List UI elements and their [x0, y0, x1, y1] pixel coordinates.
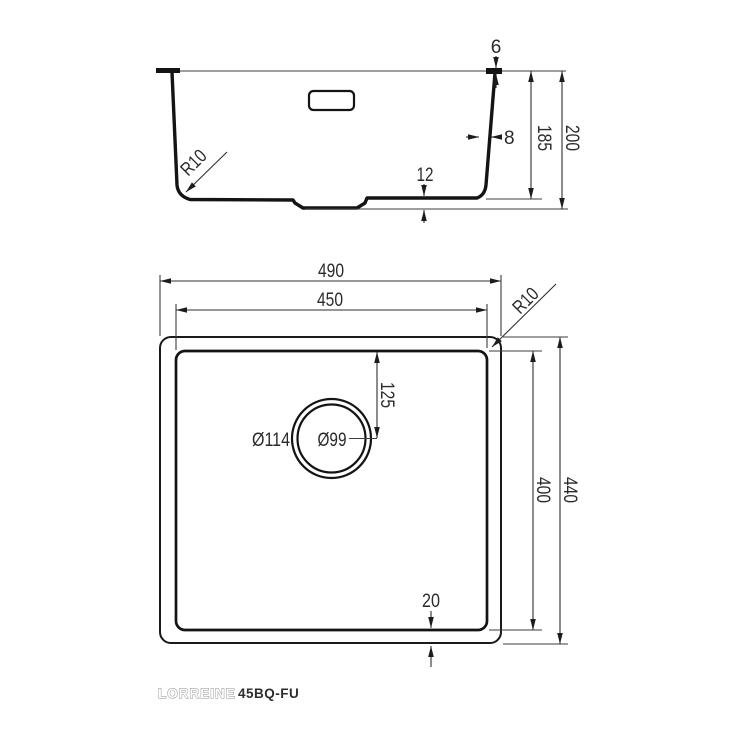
- dim-label-bottom-thickness: 12: [417, 165, 434, 186]
- dim-label-rim-height: 6: [491, 37, 502, 58]
- overflow-slot: [309, 91, 354, 110]
- sink-bowl-edge: [176, 351, 487, 630]
- sink-outer-edge: [160, 337, 501, 643]
- dim-label-bottom-inset: 20: [422, 591, 440, 612]
- dim-label-inner-width: 450: [317, 290, 343, 311]
- dim-label-plan-radius: R10: [509, 284, 544, 319]
- footer-logo: LORREINE 45BQ-FU: [158, 686, 299, 701]
- dim-label-section-radius: R10: [177, 146, 212, 181]
- plan-view: 490 450 R10 125 Ø114 Ø99 400 440 20: [160, 261, 580, 667]
- section-left-rim: [156, 68, 180, 73]
- section-view: 185 200 6 8 12 R10: [156, 37, 582, 223]
- sink-dimension-drawing: 185 200 6 8 12 R10 490 450: [0, 0, 742, 738]
- dim-label-outer-length: 440: [559, 477, 580, 503]
- dim-label-inner-depth: 185: [533, 125, 554, 151]
- technical-drawing-page: 185 200 6 8 12 R10 490 450: [0, 0, 742, 738]
- dim-label-total-height: 200: [561, 125, 582, 151]
- dim-label-drain-offset: 125: [376, 382, 397, 408]
- dim-label-wall-thickness: 8: [504, 128, 515, 149]
- model-number: 45BQ-FU: [238, 686, 299, 701]
- dim-label-drain-inner-diameter: Ø99: [318, 430, 347, 451]
- dim-label-outer-width: 490: [318, 261, 344, 282]
- dim-label-inner-length: 400: [532, 477, 553, 503]
- dim-label-drain-outer-diameter: Ø114: [252, 430, 290, 451]
- brand-name: LORREINE: [158, 686, 236, 701]
